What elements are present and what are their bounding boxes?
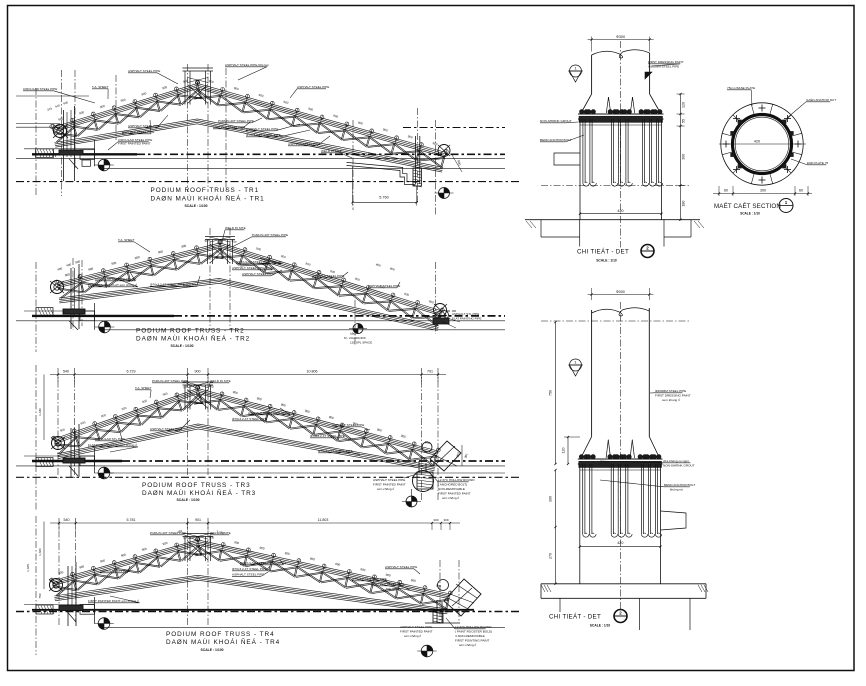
svg-text:NON-SHRINK GROUT: NON-SHRINK GROUT xyxy=(540,119,572,123)
svg-text:ASPHALT STEEL PIPE: ASPHALT STEEL PIPE xyxy=(373,478,405,482)
svg-text:FLAT PAINTING PIPE: FLAT PAINTING PIPE xyxy=(452,317,482,321)
svg-text:ASPHALT STEEL PIPE: ASPHALT STEEL PIPE xyxy=(122,130,154,134)
svg-text:ASPHALT STEEL PIPE: ASPHALT STEEL PIPE xyxy=(232,573,264,577)
svg-text:L2 37C HOLLOW ROUND: L2 37C HOLLOW ROUND xyxy=(438,478,475,482)
svg-text:791: 791 xyxy=(427,370,433,374)
svg-text:CHI TIEÁT - DET: CHI TIEÁT - DET xyxy=(577,249,629,256)
svg-text:FIRST POINTING PAINT: FIRST POINTING PAINT xyxy=(455,639,490,643)
svg-text:Φ76x3.2-4T STEEL PIPE: Φ76x3.2-4T STEEL PIPE xyxy=(318,449,353,453)
svg-text:sơn chống rỉ: sơn chống rỉ xyxy=(404,634,421,638)
svg-text:180: 180 xyxy=(682,201,686,207)
svg-text:300: 300 xyxy=(433,518,438,522)
svg-text:Φ300MM STEEL PIPE: Φ300MM STEEL PIPE xyxy=(648,65,679,69)
svg-text:PURLIN-40T STEEL PIPE: PURLIN-40T STEEL PIPE xyxy=(150,531,186,535)
svg-text:DAØN MAÙI KHOÁI ÑEÁ - TR2: DAØN MAÙI KHOÁI ÑEÁ - TR2 xyxy=(136,334,250,343)
svg-text:ASPHALT STEEL PIPE: ASPHALT STEEL PIPE xyxy=(297,85,329,89)
svg-text:55: 55 xyxy=(682,119,686,123)
svg-text:DAØN MAÙI KHOÁI ÑEÁ - TR4: DAØN MAÙI KHOÁI ÑEÁ - TR4 xyxy=(166,637,280,646)
svg-text:( PAINT ROOSTER BOLD): ( PAINT ROOSTER BOLD) xyxy=(455,630,492,634)
svg-text:420: 420 xyxy=(617,209,623,213)
svg-text:PODIUM ROOF TRUSS - TR4: PODIUM ROOF TRUSS - TR4 xyxy=(166,631,275,638)
svg-text:( ANCHORED BOLT): ( ANCHORED BOLT) xyxy=(438,483,467,487)
svg-text:FIRST PAINTED PAINT: FIRST PAINTED PAINT xyxy=(373,483,406,487)
svg-text:SCALE : 1/10: SCALE : 1/10 xyxy=(596,259,617,263)
svg-text:750: 750 xyxy=(38,593,42,598)
svg-text:ASPHALT STEEL PIPE: ASPHALT STEEL PIPE xyxy=(128,69,160,73)
svg-text:(đai): (đai) xyxy=(350,332,356,336)
svg-text:CIRCULAR STEEL PIPE-C60 lag: CIRCULAR STEEL PIPE-C60 lag xyxy=(240,561,286,565)
svg-text:FIRST DRESSING PAINT: FIRST DRESSING PAINT xyxy=(655,394,691,398)
svg-text:NON-REMOVABLE: NON-REMOVABLE xyxy=(438,487,465,491)
svg-text:WELD IN SITE: WELD IN SITE xyxy=(321,149,342,153)
svg-text:ASPHALT STEEL PIPE: ASPHALT STEEL PIPE xyxy=(150,427,182,431)
svg-text:540: 540 xyxy=(64,518,70,522)
svg-text:ASPHALT STEEL PIPE: ASPHALT STEEL PIPE xyxy=(288,142,320,146)
svg-text:CIRCULAR STEEL PIPE -60p lag: CIRCULAR STEEL PIPE -60p lag xyxy=(236,260,283,264)
svg-text:60: 60 xyxy=(799,189,803,193)
svg-text:xem khung rỉ: xem khung rỉ xyxy=(662,398,680,402)
svg-text:FIRST PAINTED PAINT: FIRST PAINTED PAINT xyxy=(118,142,151,146)
svg-text:SCALE : 1/10: SCALE : 1/10 xyxy=(590,624,611,628)
svg-text:PURLIN-40T STEEL PIPE: PURLIN-40T STEEL PIPE xyxy=(152,379,188,383)
svg-text:300: 300 xyxy=(549,496,553,502)
svg-text:ASPHALT STEEL PIPE: ASPHALT STEEL PIPE xyxy=(213,125,245,129)
svg-text:ASPHALT STEEL PIPE-3g lag: ASPHALT STEEL PIPE-3g lag xyxy=(232,266,274,270)
svg-text:Φ76x3.2-4T STEEL PIPE: Φ76x3.2-4T STEEL PIPE xyxy=(310,434,345,438)
svg-text:Φ300: Φ300 xyxy=(616,290,625,294)
svg-text:ASPHALT STEEL PIPE: ASPHALT STEEL PIPE xyxy=(368,284,400,288)
svg-text:1,320: 1,320 xyxy=(38,548,42,556)
svg-text:SCALE : 1/10: SCALE : 1/10 xyxy=(740,212,760,216)
svg-text:420: 420 xyxy=(754,140,760,144)
svg-text:ASPHALT STEEL PIPE-60p lag: ASPHALT STEEL PIPE-60p lag xyxy=(225,63,269,67)
svg-text:540: 540 xyxy=(63,370,69,374)
svg-text:NON-SHRINK GROUT: NON-SHRINK GROUT xyxy=(663,464,695,468)
svg-text:sơn chống rỉ: sơn chống rỉ xyxy=(459,643,476,647)
svg-text:vữa không co ngót: vữa không co ngót xyxy=(663,459,689,463)
svg-text:1,425: 1,425 xyxy=(26,564,30,572)
svg-text:WELD IN SITE: WELD IN SITE xyxy=(210,531,231,535)
svg-text:WELD IN SITE: WELD IN SITE xyxy=(210,379,231,383)
svg-text:DAØN MAÙI KHOÁI ÑEÁ - TR1: DAØN MAÙI KHOÁI ÑEÁ - TR1 xyxy=(151,194,265,203)
svg-text:ASPHALT STEEL PIPE: ASPHALT STEEL PIPE xyxy=(312,274,344,278)
svg-text:75mm BASE PLATE: 75mm BASE PLATE xyxy=(727,86,755,90)
svg-text:ASPHALT STEEL PIPE: ASPHALT STEEL PIPE xyxy=(400,625,432,629)
svg-text:ASPHALT STEEL PIPE: ASPHALT STEEL PIPE xyxy=(246,127,278,131)
svg-text:5.760: 5.760 xyxy=(379,196,389,200)
svg-text:300: 300 xyxy=(682,154,686,160)
svg-text:300: 300 xyxy=(760,189,766,193)
svg-text:Φ76x3.2-4T STEEL PIPE: Φ76x3.2-4T STEEL PIPE xyxy=(232,567,267,571)
svg-text:60: 60 xyxy=(724,189,728,193)
svg-text:CHI TIEÁT - DET: CHI TIEÁT - DET xyxy=(549,614,601,621)
svg-text:309: 309 xyxy=(443,518,448,522)
svg-text:SCALE : 1/100: SCALE : 1/100 xyxy=(177,498,200,502)
svg-text:120: 120 xyxy=(682,102,686,108)
svg-text:CIRCULAR STL PIPE: CIRCULAR STL PIPE xyxy=(100,569,130,573)
svg-text:M - 24x200x300: M - 24x200x300 xyxy=(344,336,366,340)
svg-text:270: 270 xyxy=(549,553,553,559)
svg-text:ASPHALT STEEL PIPE: ASPHALT STEEL PIPE xyxy=(242,272,274,276)
svg-text:ASPHALT STL PIPE: ASPHALT STL PIPE xyxy=(452,312,479,316)
svg-text:WELD IN SITE: WELD IN SITE xyxy=(225,226,246,230)
svg-text:Φ76x3.2-4T STEEL PIPE: Φ76x3.2-4T STEEL PIPE xyxy=(246,133,281,137)
svg-text:11.803: 11.803 xyxy=(318,518,329,522)
svg-text:PURLIN-40T STEEL PIPE: PURLIN-40T STEEL PIPE xyxy=(218,119,254,123)
svg-text:CIRCULAR STL PIPE-60p lag: CIRCULAR STL PIPE-60p lag xyxy=(95,277,137,281)
svg-text:T.A. SHEET: T.A. SHEET xyxy=(118,238,135,242)
svg-text:CIRCULAR STL PIPE: CIRCULAR STL PIPE xyxy=(95,437,125,441)
svg-text:120: 120 xyxy=(562,448,566,454)
svg-text:MAËT CAÉT SECTION: MAËT CAÉT SECTION xyxy=(714,203,781,210)
svg-text:Φ300MM STEEL PIPE: Φ300MM STEEL PIPE xyxy=(655,389,686,393)
svg-text:SCALE : 1/100: SCALE : 1/100 xyxy=(171,344,194,348)
svg-text:Φ300: Φ300 xyxy=(616,35,625,39)
svg-text:Φ76x3.2-4T STEEL PIPE: Φ76x3.2-4T STEEL PIPE xyxy=(232,417,267,421)
svg-text:901: 901 xyxy=(195,518,201,522)
svg-text:ASPHALT STEEL PIPE: ASPHALT STEEL PIPE xyxy=(385,565,417,569)
svg-text:PODIUM ROOF TRUSS - TR2: PODIUM ROOF TRUSS - TR2 xyxy=(136,328,245,335)
svg-text:750: 750 xyxy=(549,390,553,396)
svg-text:FIRST PAINTED PAINT: FIRST PAINTED PAINT xyxy=(438,492,471,496)
svg-text:sơn chống rỉ: sơn chống rỉ xyxy=(377,487,394,491)
svg-text:ASPHALT STEEL PIPE: ASPHALT STEEL PIPE xyxy=(372,582,404,586)
svg-text:sơn chống rỉ: sơn chống rỉ xyxy=(442,496,459,500)
svg-text:PODIUM ROOF TRUSS - TR1: PODIUM ROOF TRUSS - TR1 xyxy=(151,187,260,194)
svg-text:T.A. SHEET: T.A. SHEET xyxy=(92,85,109,89)
svg-text:-60p lag: -60p lag xyxy=(385,587,396,591)
svg-text:FIRST DRESSING PAINT: FIRST DRESSING PAINT xyxy=(648,60,684,64)
svg-text:GAÉN ANCHOR NUT: GAÉN ANCHOR NUT xyxy=(806,97,836,102)
svg-text:4-NON-REMOVABLE: 4-NON-REMOVABLE xyxy=(455,634,485,638)
svg-text:FLAT PAINTING PLAT-sơn chống r: FLAT PAINTING PLAT-sơn chống rỉ xyxy=(88,443,137,447)
svg-text:T.A. SHEET: T.A. SHEET xyxy=(135,386,152,390)
svg-text:6.729: 6.729 xyxy=(127,370,136,374)
svg-text:PURLIN-40T STEEL PIPE: PURLIN-40T STEEL PIPE xyxy=(252,233,288,237)
svg-text:ASPHALT STEEL PIPE: ASPHALT STEEL PIPE xyxy=(332,423,364,427)
svg-text:END PLATE 75: END PLATE 75 xyxy=(807,161,829,165)
svg-text:PODIUM ROOF TRUSS - TR3: PODIUM ROOF TRUSS - TR3 xyxy=(142,482,251,489)
svg-text:1,430: 1,430 xyxy=(38,408,42,416)
svg-text:10.806: 10.806 xyxy=(307,370,318,374)
svg-text:SCALE : 1/100: SCALE : 1/100 xyxy=(185,204,208,208)
svg-text:L2 37C HOLLOW ROUND: L2 37C HOLLOW ROUND xyxy=(455,625,492,629)
svg-text:5.781: 5.781 xyxy=(127,518,136,522)
svg-text:không rút: không rút xyxy=(670,488,683,492)
svg-text:BEND ANCHOR BOLT: BEND ANCHOR BOLT xyxy=(664,483,696,487)
svg-text:FIRST PAINTED PAINT: FIRST PAINTED PAINT xyxy=(400,630,433,634)
svg-text:SCALE : 1/100: SCALE : 1/100 xyxy=(201,648,224,652)
svg-text:DAØN MAÙI KHOÁI ÑEÁ - TR3: DAØN MAÙI KHOÁI ÑEÁ - TR3 xyxy=(142,488,256,497)
svg-text:Φ76x3.2-4T STEEL PIPE: Φ76x3.2-4T STEEL PIPE xyxy=(352,577,387,581)
svg-text:120 SPL SPACE: 120 SPL SPACE xyxy=(350,341,372,345)
svg-text:Φ76x3.2-4T STEEL PIPE-60p lag: Φ76x3.2-4T STEEL PIPE-60p lag xyxy=(150,283,196,287)
svg-text:CIRCULAR STEEL PIPE: CIRCULAR STEEL PIPE xyxy=(23,87,57,91)
svg-text:900: 900 xyxy=(195,370,201,374)
svg-text:420: 420 xyxy=(617,541,623,545)
svg-text:ASPHALT STEEL PIPE: ASPHALT STEEL PIPE xyxy=(128,124,160,128)
